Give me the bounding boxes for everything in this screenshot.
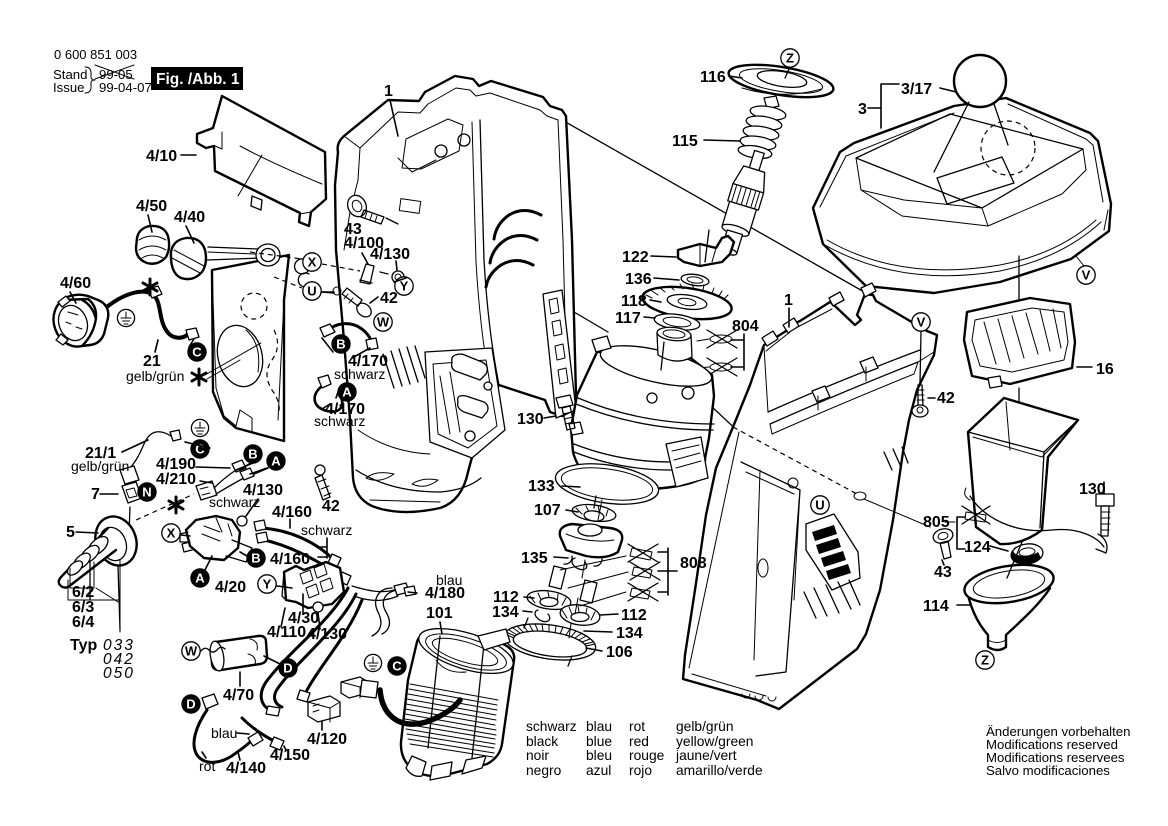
svg-text:schwarz: schwarz [334,366,385,382]
svg-text:W: W [185,644,198,659]
svg-text:808: 808 [680,555,707,572]
svg-text:134: 134 [616,625,643,642]
svg-text:V: V [917,315,926,330]
svg-text:3/17: 3/17 [901,81,932,98]
svg-text:7: 7 [91,486,100,503]
svg-text:4/140: 4/140 [226,760,266,777]
svg-text:Issue: Issue [53,80,85,95]
svg-text:116: 116 [700,69,726,86]
svg-text:42: 42 [380,290,398,307]
svg-text:blau: blau [586,719,612,734]
svg-text:gelb/grün: gelb/grün [676,719,734,734]
svg-text:W: W [377,315,390,330]
svg-text:112: 112 [621,607,647,624]
svg-text:4/210: 4/210 [156,471,196,488]
svg-text:rouge: rouge [629,748,665,763]
svg-text:133: 133 [528,478,555,495]
svg-text:4/110: 4/110 [267,624,306,641]
svg-text:Salvo modificaciones: Salvo modificaciones [986,763,1110,778]
svg-text:Z: Z [981,653,989,668]
svg-text:rot: rot [199,758,215,774]
svg-text:6/4: 6/4 [72,614,94,631]
svg-text:115: 115 [672,133,698,150]
svg-text:jaune/vert: jaune/vert [675,748,737,763]
svg-text:schwarz: schwarz [526,719,577,734]
svg-text:N: N [142,485,151,500]
svg-text:4/10: 4/10 [146,148,177,165]
svg-text:gelb/grün: gelb/grün [126,368,184,384]
svg-text:107: 107 [534,502,561,519]
svg-text:124: 124 [964,539,991,556]
svg-text:4/50: 4/50 [136,198,167,215]
svg-text:blue: blue [586,734,612,749]
svg-text:blau: blau [211,725,237,741]
svg-text:amarillo/verde: amarillo/verde [676,763,763,778]
svg-text:rojo: rojo [629,763,652,778]
svg-text:rot: rot [629,719,645,734]
svg-text:1: 1 [384,83,393,100]
svg-text:X: X [308,255,317,270]
svg-text:A: A [271,454,281,469]
svg-text:136: 136 [625,271,652,288]
svg-text:D: D [283,661,292,676]
svg-text:C: C [192,345,202,360]
svg-text:804: 804 [732,318,759,335]
svg-text:schwarz: schwarz [301,522,352,538]
svg-text:B: B [336,337,345,352]
svg-text:Z: Z [786,51,794,66]
svg-text:C: C [195,442,205,457]
svg-text:130: 130 [517,411,544,428]
svg-text:U: U [307,284,316,299]
svg-text:4/20: 4/20 [215,579,246,596]
svg-text:noir: noir [526,748,549,763]
svg-text:1: 1 [784,292,793,309]
svg-text:Y: Y [263,577,272,592]
svg-text:red: red [629,734,649,749]
svg-text:Typ: Typ [70,637,97,654]
svg-text:42: 42 [937,390,955,407]
svg-text:122: 122 [622,249,649,266]
svg-text:azul: azul [586,763,611,778]
svg-text:negro: negro [526,763,562,778]
svg-text:5: 5 [66,524,75,541]
svg-text:A: A [342,385,352,400]
svg-text:yellow/green: yellow/green [676,734,753,749]
svg-text:050: 050 [103,665,135,682]
svg-text:4/120: 4/120 [307,731,347,748]
svg-text:805: 805 [923,514,950,531]
svg-text:3: 3 [858,101,867,118]
svg-text:4/160: 4/160 [272,504,312,521]
svg-text:gelb/grün: gelb/grün [71,458,129,474]
svg-text:4/130: 4/130 [243,482,283,499]
svg-text:4/130: 4/130 [307,626,347,643]
svg-text:4/40: 4/40 [174,209,205,226]
svg-text:U: U [815,498,824,513]
svg-text:43: 43 [934,564,952,581]
svg-text:135: 135 [521,550,548,567]
svg-text:bleu: bleu [586,748,612,763]
svg-text:134: 134 [492,604,519,621]
svg-text:B: B [251,551,260,566]
svg-text:42: 42 [322,498,340,515]
svg-text:schwarz: schwarz [314,413,365,429]
svg-text:117: 117 [615,310,641,327]
svg-text:Fig. /Abb. 1: Fig. /Abb. 1 [156,71,240,88]
svg-text:B: B [248,447,257,462]
svg-text:4/180: 4/180 [425,585,465,602]
svg-text:106: 106 [606,644,633,661]
svg-text:D: D [186,697,195,712]
svg-text:4/130: 4/130 [370,246,410,263]
svg-text:118: 118 [621,293,647,310]
svg-text:X: X [167,526,176,541]
svg-text:black: black [526,734,558,749]
svg-text:130: 130 [1079,481,1106,498]
svg-text:C: C [392,659,402,674]
svg-text:Y: Y [400,279,409,294]
svg-text:4/150: 4/150 [270,747,310,764]
svg-text:99-04-07: 99-04-07 [99,80,152,95]
svg-text:4/160: 4/160 [270,551,310,568]
svg-text:0 600 851 003: 0 600 851 003 [54,47,137,62]
svg-text:16: 16 [1096,361,1114,378]
svg-text:V: V [1082,268,1091,283]
svg-text:101: 101 [426,605,453,622]
svg-text:4/70: 4/70 [223,687,254,704]
svg-text:4/60: 4/60 [60,275,91,292]
svg-text:A: A [195,571,205,586]
svg-text:114: 114 [923,598,949,615]
